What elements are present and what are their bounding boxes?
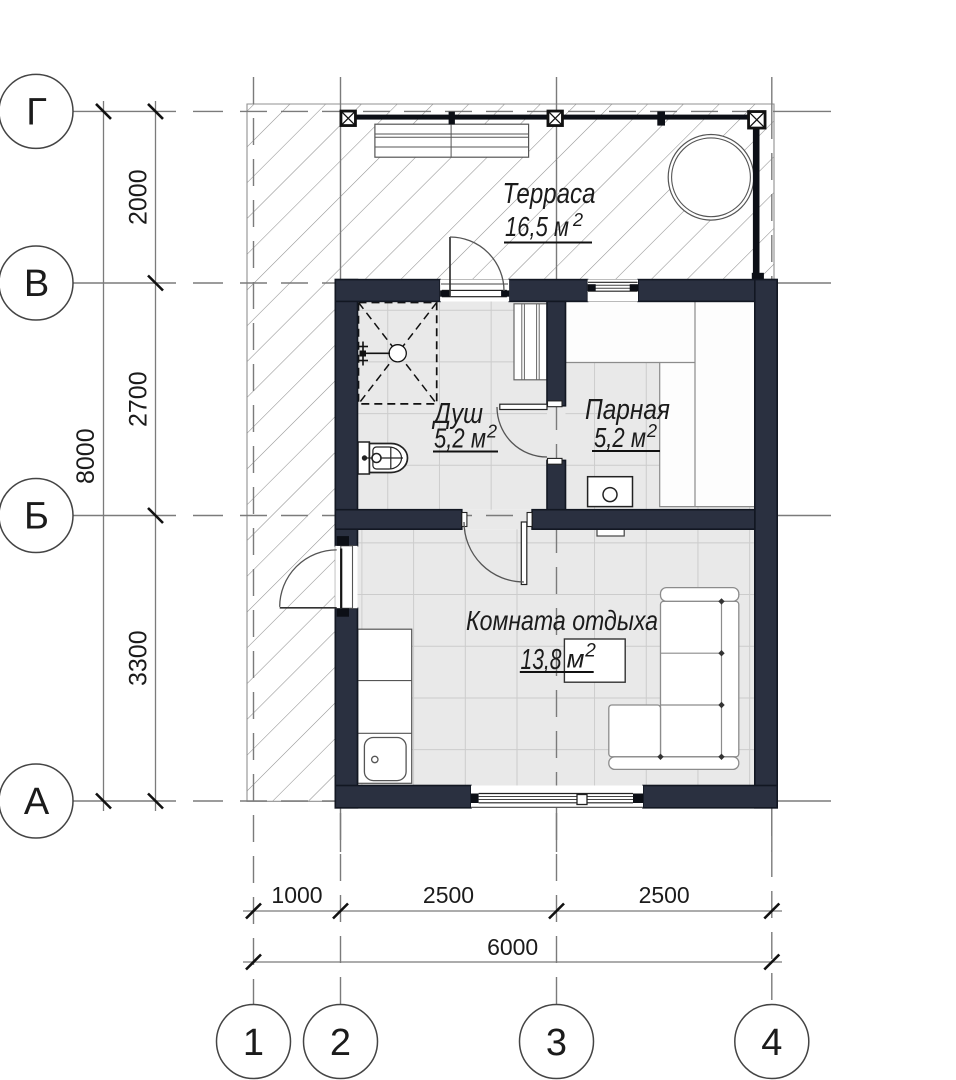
svg-text:2: 2 xyxy=(486,422,497,442)
svg-text:8000: 8000 xyxy=(72,428,100,484)
svg-text:3300: 3300 xyxy=(125,630,153,686)
svg-text:3: 3 xyxy=(546,1022,567,1064)
svg-text:16,5 м: 16,5 м xyxy=(505,211,569,242)
svg-text:2: 2 xyxy=(572,210,583,230)
svg-text:Терраса: Терраса xyxy=(503,178,596,210)
svg-text:1000: 1000 xyxy=(271,882,322,908)
svg-text:4: 4 xyxy=(761,1022,782,1064)
svg-text:Г: Г xyxy=(26,91,47,133)
svg-text:5,2 м: 5,2 м xyxy=(434,423,486,454)
svg-text:В: В xyxy=(24,263,49,305)
svg-text:2000: 2000 xyxy=(125,169,153,225)
svg-text:Комната отдыха: Комната отдыха xyxy=(466,605,658,636)
svg-text:2700: 2700 xyxy=(125,371,153,427)
svg-text:2500: 2500 xyxy=(639,882,690,908)
svg-text:м: м xyxy=(567,644,585,674)
svg-text:2: 2 xyxy=(646,421,657,441)
svg-text:6000: 6000 xyxy=(487,934,538,960)
svg-text:А: А xyxy=(24,781,50,823)
svg-text:2: 2 xyxy=(584,641,596,662)
svg-text:Б: Б xyxy=(24,496,49,538)
svg-text:2500: 2500 xyxy=(423,882,474,908)
svg-text:1: 1 xyxy=(243,1022,264,1064)
svg-text:2: 2 xyxy=(330,1022,351,1064)
svg-text:5,2 м: 5,2 м xyxy=(594,422,646,453)
